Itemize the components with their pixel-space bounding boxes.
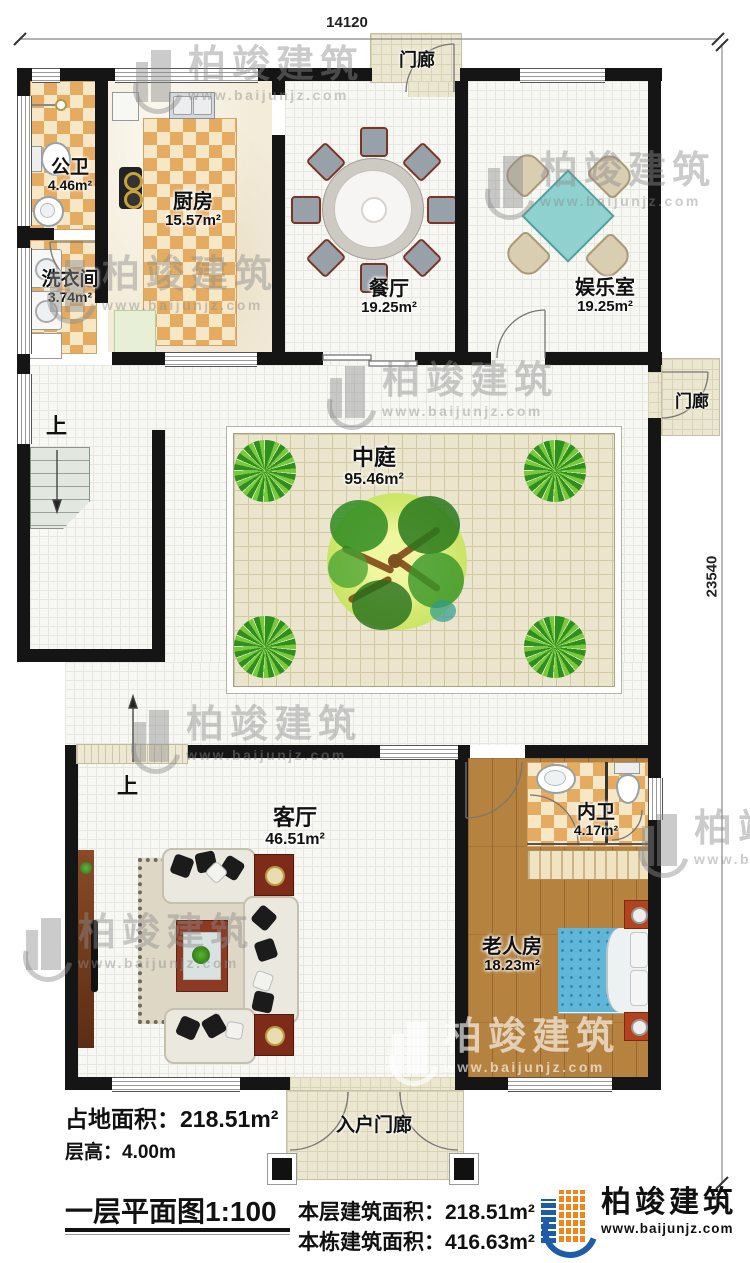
top-porch-label: 门廊	[377, 46, 457, 72]
window	[520, 68, 605, 83]
wall	[525, 745, 660, 758]
room-name: 餐厅	[329, 278, 449, 300]
room-name: 中庭	[314, 446, 434, 471]
wall	[17, 444, 30, 662]
cushion	[225, 1021, 245, 1041]
dining-chair	[427, 196, 457, 224]
dimension-height: 23540	[704, 547, 721, 607]
stairs-up-label: 上	[117, 770, 138, 800]
wall	[17, 354, 30, 374]
plan-title: 一层平面图1:100	[65, 1190, 277, 1230]
pillow	[630, 970, 648, 1006]
brand-url: www.baijunjz.com	[601, 1221, 737, 1236]
window	[380, 745, 458, 760]
wall	[65, 745, 78, 1090]
plant	[234, 616, 296, 678]
floor-height-line: 层高：4.00m	[65, 1137, 176, 1164]
wall	[17, 226, 30, 248]
plant	[524, 616, 586, 678]
wall	[415, 352, 491, 365]
kitchen-mat	[114, 310, 156, 354]
tree-foliage	[328, 548, 368, 588]
wall	[458, 745, 470, 758]
room-area: 4.46m²	[20, 178, 120, 194]
room-label-courtyard: 中庭 95.46m²	[314, 446, 434, 489]
toilet-tank	[614, 762, 640, 774]
room-area: 19.25m²	[329, 300, 449, 317]
tree-foliage	[352, 580, 412, 630]
room-name: 客厅	[235, 806, 355, 831]
floor-area-line: 本层建筑面积：218.51m²	[298, 1196, 535, 1226]
room-area: 3.74m²	[10, 290, 130, 306]
room-name: 内卫	[546, 802, 646, 823]
room-label-ensuite: 内卫 4.17m²	[546, 802, 646, 839]
window	[508, 1077, 612, 1092]
entry-threshold	[290, 1077, 458, 1090]
wall	[112, 352, 165, 365]
wall	[612, 1077, 660, 1090]
tv	[91, 920, 98, 992]
room-label-living: 客厅 46.51m²	[235, 806, 355, 849]
burner	[124, 172, 143, 191]
top-porch-threshold	[408, 81, 456, 97]
tree-trunk	[388, 554, 402, 568]
room-name: 老人房	[452, 936, 572, 958]
title-underline-thin	[65, 1234, 290, 1235]
dimension-width: 14120	[317, 14, 377, 31]
window	[112, 1077, 240, 1092]
wall	[240, 1077, 290, 1090]
towel-ring	[55, 99, 67, 111]
room-name: 厨房	[133, 191, 253, 213]
wall	[455, 81, 468, 365]
stairs-up-label: 上	[46, 410, 67, 440]
window	[165, 352, 257, 367]
room-area: 15.57m²	[133, 213, 253, 230]
brand-name: 柏竣建筑	[601, 1186, 737, 1221]
window	[32, 68, 60, 83]
wall	[545, 352, 662, 365]
land-area-line: 占地面积：218.51m²	[65, 1100, 278, 1134]
side-porch-label: 门廊	[652, 387, 732, 412]
cabinet-plant	[80, 862, 92, 874]
watermark-logo-icon	[26, 914, 70, 972]
wall	[60, 68, 115, 81]
entry-porch-label: 入户门廊	[304, 1110, 444, 1137]
room-label-entertainment: 娱乐室 19.25m²	[545, 277, 665, 316]
floor-area-label: 本层建筑面积：	[298, 1201, 445, 1224]
floor-plan-canvas: 公卫 4.46m² 厨房 15.57m² 餐厅 19.25m² 娱乐室 19.2…	[0, 0, 750, 1263]
total-area-value: 416.63m²	[445, 1231, 535, 1254]
plant	[524, 440, 586, 502]
dining-chair	[360, 127, 388, 157]
wall	[272, 81, 285, 95]
lamp	[631, 907, 648, 924]
total-area-line: 本栋建筑面积：416.63m²	[298, 1226, 535, 1256]
total-area-label: 本栋建筑面积：	[298, 1231, 445, 1254]
plant	[234, 440, 296, 502]
room-area: 4.17m²	[546, 823, 646, 839]
wall	[648, 418, 661, 778]
room-area: 18.23m²	[452, 958, 572, 975]
table-plant	[192, 946, 210, 964]
wall	[272, 135, 285, 365]
lamp	[631, 1019, 648, 1036]
brand-logo-icon	[540, 1186, 594, 1250]
window	[648, 778, 663, 820]
floor-height-label: 层高：	[65, 1142, 122, 1163]
wall	[17, 68, 30, 96]
window	[115, 68, 258, 83]
ensuite-edge	[527, 843, 648, 845]
pillow	[630, 932, 648, 968]
room-name: 洗衣间	[10, 269, 130, 290]
dining-table-center	[361, 197, 387, 223]
wall	[648, 820, 661, 1090]
wall	[65, 1077, 112, 1090]
stair-landing	[76, 744, 188, 764]
title-underline	[65, 1228, 290, 1232]
tree-foliage	[398, 496, 460, 554]
wall	[258, 68, 372, 81]
ensuite-basin-inner	[544, 770, 566, 786]
wall	[152, 430, 165, 662]
room-label-bathroom1: 公卫 4.46m²	[20, 157, 120, 194]
side-table-ornament	[265, 1026, 285, 1046]
fridge	[112, 92, 139, 121]
room-label-dining: 餐厅 19.25m²	[329, 278, 449, 317]
room-label-laundry: 洗衣间 3.74m²	[10, 269, 130, 306]
wall	[648, 68, 661, 372]
wall	[257, 352, 323, 365]
dining-chair	[291, 196, 321, 224]
porch-column	[268, 1154, 296, 1184]
brand-logo: 柏竣建筑 www.baijunjz.com	[540, 1186, 737, 1250]
wall	[460, 68, 520, 81]
kitchen-counter-tile	[143, 118, 237, 346]
wall	[30, 228, 54, 240]
washbasin-drain	[40, 203, 55, 218]
floor-area-value: 218.51m²	[445, 1201, 535, 1224]
sink-basin	[173, 96, 192, 115]
room-area: 95.46m²	[314, 471, 434, 489]
window	[17, 374, 32, 444]
wall	[455, 758, 468, 1090]
room-area: 19.25m²	[545, 299, 665, 316]
floor-height-value: 4.00m	[122, 1142, 176, 1163]
room-name: 公卫	[20, 157, 120, 178]
wall	[183, 745, 380, 758]
wardrobe	[527, 850, 650, 880]
room-label-kitchen: 厨房 15.57m²	[133, 191, 253, 230]
cushion	[251, 990, 275, 1014]
tree-foliage	[430, 600, 456, 622]
room-area: 46.51m²	[235, 831, 355, 849]
wall	[17, 649, 165, 662]
porch-column	[450, 1154, 478, 1184]
room-name: 娱乐室	[545, 277, 665, 299]
sink-basin	[193, 96, 212, 115]
tree-foliage	[408, 552, 464, 608]
land-area-label: 占地面积：	[65, 1106, 180, 1132]
room-label-bedroom: 老人房 18.23m²	[452, 936, 572, 975]
tree-foliage	[330, 500, 388, 552]
side-table-ornament	[265, 866, 285, 886]
land-area-value: 218.51m²	[180, 1106, 278, 1132]
laundry-tub	[29, 333, 62, 359]
